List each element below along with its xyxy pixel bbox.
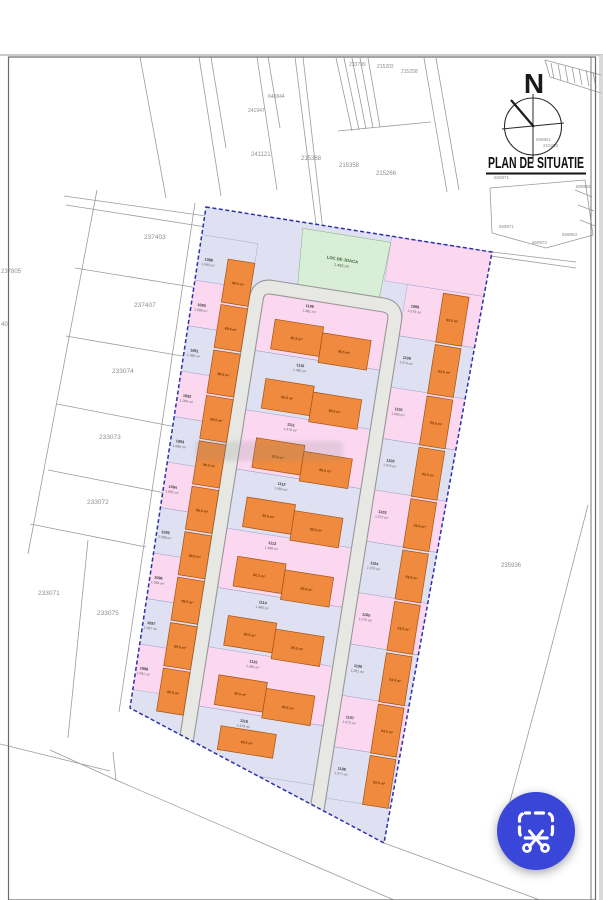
cadastral-parcel-number: 233074 [112,368,134,375]
cadastral-line [436,58,459,190]
cadastral-line [336,58,352,131]
cadastral-parcel-number: 237407 [134,302,156,309]
cadastral-parcel-number: 659851 [536,137,552,142]
cadastral-line [68,540,88,738]
scissors-crop-icon [513,808,559,854]
cadastral-parcel-number: 237805 [1,269,22,275]
cadastral-parcel-number: 241947 [248,108,265,114]
cadastral-parcel-number: 659871 [499,224,515,229]
cadastral-line [579,69,582,85]
cadastral-parcel-number: 215258 [401,69,418,75]
cadastral-line [565,66,568,82]
cadastral-line [572,67,575,83]
title-block: PLAN DE SITUATIE [486,155,586,174]
cadastral-line [66,205,206,227]
cadastral-line [0,744,110,771]
cadastral-parcel-number: 215202 [377,64,394,70]
cadastral-line [199,57,221,196]
cadastral-line [578,205,594,211]
site-plan-map: 89.5 m²89.5 m²89.5 m²89.5 m²89.5 m²89.5 … [0,0,603,900]
cadastral-line [113,752,116,780]
cadastral-line [268,57,280,128]
cadastral-line [211,57,226,148]
cadastral-line [492,252,576,262]
cadastral-parcel-number: 659872 [532,240,548,245]
cadastral-parcel-number: 659871 [494,175,510,180]
cadastral-parcel-number: 215358 [339,163,360,169]
cadastral-line [551,63,554,79]
cadastral-line [424,58,447,192]
cadastral-line [75,268,198,288]
cadastral-parcel-number: 233075 [97,610,119,617]
cadastral-line [360,58,373,128]
cadastral-line [580,220,595,226]
cadastral-parcel-number: 233071 [38,590,60,597]
cadastral-line [257,57,277,190]
cadastral-parcel-number: 899885 [576,184,592,189]
cadastral-line [338,122,431,131]
cadastral-line [548,505,588,660]
cadastral-parcel-number: 233073 [99,434,121,441]
cadastral-line [57,404,176,427]
cadastral-line [558,64,561,80]
cadastral-parcel-number: 241121 [251,152,271,158]
cadastral-line [575,190,592,197]
compass-needle [511,100,534,127]
watermark [195,441,343,461]
cadastral-line [140,57,166,198]
cadastral-line [490,180,585,188]
cadastral-line [352,58,366,129]
cadastral-parcel-number: 235936 [501,563,522,569]
plot-number: 1117 [259,803,268,808]
cadastral-parcel-number: 40 [1,322,8,328]
cadastral-parcel-number: 215266 [376,171,397,177]
photo-edge [599,55,603,900]
page-title: PLAN DE SITUATIE [488,155,584,172]
smart-select-button[interactable] [497,792,575,870]
cadastral-parcel-number: 640844 [268,94,285,100]
cadastral-parcel-number: 659853 [562,232,578,237]
cadastral-parcel-number: 233072 [87,499,109,506]
north-label: N [524,68,544,99]
cadastral-line [550,77,601,93]
cadastral-line [48,470,165,493]
cadastral-line [66,336,188,357]
cadastral-line [344,58,359,130]
cadastral-line [50,750,116,780]
cadastral-parcel-number: 233789 [349,62,366,68]
screenshot-viewer: 89.5 m²89.5 m²89.5 m²89.5 m²89.5 m²89.5 … [0,0,603,900]
cadastral-parcel-number: 237403 [144,234,166,241]
cadastral-line [545,60,550,77]
plot-area: 1.476 m² [255,807,270,813]
cadastral-parcel-number: 215368 [301,156,322,162]
cadastral-line [490,188,492,233]
cadastral-line [586,70,589,86]
